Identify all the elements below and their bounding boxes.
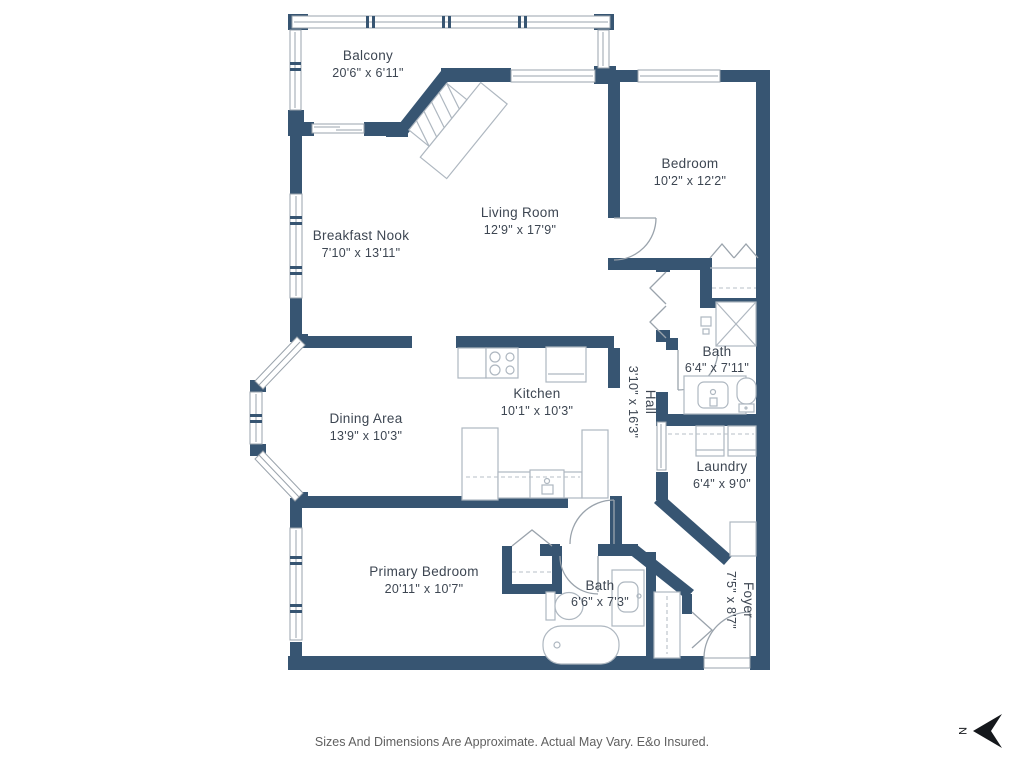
walls [250, 14, 770, 670]
room-name-living-room: Living Room [481, 205, 559, 220]
room-name-bath-lower: Bath [586, 578, 615, 593]
room-name-bedroom: Bedroom [662, 156, 719, 171]
room-dims-dining-area: 13'9" x 10'3" [330, 429, 402, 443]
stove [486, 348, 518, 378]
room-name-hall: Hall [643, 390, 658, 414]
kitchen-counter-top-left [458, 348, 486, 378]
room-dims-balcony: 20'6" x 6'11" [332, 66, 404, 80]
room-dims-kitchen: 10'1" x 10'3" [501, 404, 573, 418]
upper-bath-toilet [737, 378, 756, 412]
room-name-foyer: Foyer [741, 582, 756, 618]
dryer [728, 426, 756, 456]
foyer-cabinet [730, 522, 756, 556]
room-label-foyer: Foyer 7'5" x 8'7" [724, 571, 756, 629]
room-name-primary-bedroom: Primary Bedroom [369, 564, 479, 579]
room-dims-primary-bedroom: 20'11" x 10'7" [385, 582, 464, 596]
kitchen-counter-right [582, 430, 608, 498]
room-dims-laundry: 6'4" x 9'0" [693, 477, 751, 491]
fireplace [400, 66, 507, 178]
room-name-breakfast-nook: Breakfast Nook [313, 228, 410, 243]
room-dims-foyer: 7'5" x 8'7" [724, 571, 738, 629]
hall-closet [650, 272, 666, 338]
kitchen-sink [530, 470, 564, 498]
room-label-hall: Hall 3'10" x 16'3" [626, 366, 658, 438]
room-name-bath-upper: Bath [703, 344, 732, 359]
kitchen-cabinet-left [462, 428, 498, 500]
room-name-dining-area: Dining Area [329, 411, 402, 426]
floor-plan: Balcony 20'6" x 6'11" Breakfast Nook 7'1… [0, 0, 1024, 768]
bathtub [543, 626, 619, 664]
compass-north-label: N [956, 727, 968, 735]
room-dims-bath-upper: 6'4" x 7'11" [685, 361, 749, 375]
shower [701, 302, 756, 346]
disclaimer-text: Sizes And Dimensions Are Approximate. Ac… [315, 735, 709, 749]
bedroom-closet [710, 244, 758, 288]
primary-bedroom-door-arc [570, 500, 614, 544]
floor-plan-canvas: Balcony 20'6" x 6'11" Breakfast Nook 7'1… [0, 0, 1024, 768]
room-dims-breakfast-nook: 7'10" x 13'11" [322, 246, 401, 260]
compass: N [956, 714, 1002, 748]
fridge [546, 347, 586, 382]
room-dims-hall: 3'10" x 16'3" [626, 366, 640, 438]
washer [696, 426, 724, 456]
room-name-laundry: Laundry [697, 459, 748, 474]
room-dims-living-room: 12'9" x 17'9" [484, 223, 556, 237]
bedroom-door-arc [614, 218, 656, 260]
north-arrow-icon [973, 714, 1002, 748]
room-name-kitchen: Kitchen [513, 386, 560, 401]
room-name-balcony: Balcony [343, 48, 393, 63]
room-dims-bath-lower: 6'6" x 7'3" [571, 595, 629, 609]
room-dims-bedroom: 10'2" x 12'2" [654, 174, 726, 188]
